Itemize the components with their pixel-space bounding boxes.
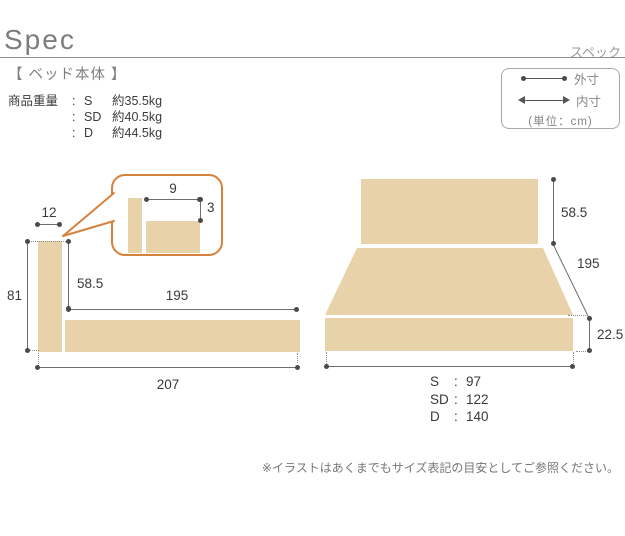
dim-headboard-thickness-label: 12 <box>36 205 62 220</box>
guide-line <box>326 352 327 364</box>
dim-base-height-label: 22.5 <box>597 327 623 342</box>
width-colon: : <box>454 373 466 391</box>
dim-step-height-label: 3 <box>207 200 215 215</box>
dim-front-inner-length-label: 195 <box>577 256 600 271</box>
dim-headboard-height-label: 58.5 <box>77 276 103 291</box>
dim-step-height-line <box>200 199 201 221</box>
dim-front-headboard-height-line <box>553 179 554 244</box>
front-view-headboard <box>361 179 538 244</box>
dim-total-height-line <box>27 241 28 351</box>
dim-headboard-thickness-line <box>37 224 60 225</box>
front-view-base <box>325 318 573 351</box>
width-size-list: S : 97 SD : 122 D : 140 <box>430 373 489 426</box>
dim-total-height-label: 81 <box>2 288 22 303</box>
dim-base-height-line <box>589 318 590 351</box>
dim-front-headboard-height-label: 58.5 <box>561 205 587 220</box>
guide-line <box>38 353 39 366</box>
width-size-d: D <box>430 408 454 426</box>
diagram-shapes <box>0 0 625 536</box>
guide-line <box>573 352 574 364</box>
width-value-s: 97 <box>466 373 489 391</box>
width-colon: : <box>454 391 466 409</box>
guide-line <box>297 353 298 363</box>
width-value-d: 140 <box>466 408 489 426</box>
side-view-headboard <box>38 241 62 352</box>
size-disclaimer-note: ※イラストはあくまでもサイズ表記の目安としてご参照ください。 <box>262 459 619 476</box>
width-value-sd: 122 <box>466 391 489 409</box>
detail-headboard <box>128 198 142 253</box>
side-view-base <box>65 320 300 352</box>
front-view-platform <box>325 248 573 315</box>
guide-line <box>568 315 586 316</box>
width-size-s: S <box>430 373 454 391</box>
spec-page: Spec スペック 【 ベッド本体 】 商品重量 : S 約35.5kg : S… <box>0 0 625 536</box>
dim-gap-width-line <box>146 199 200 200</box>
dim-total-length-label: 207 <box>141 377 195 392</box>
dim-inner-length-line <box>68 309 297 310</box>
guide-line <box>27 241 68 242</box>
dim-headboard-height-line <box>68 241 69 309</box>
dim-width-line <box>326 366 573 367</box>
dim-total-length-line <box>37 367 298 368</box>
width-colon: : <box>454 408 466 426</box>
dim-gap-width-label: 9 <box>160 181 186 196</box>
detail-platform <box>146 221 200 253</box>
dim-inner-length-label: 195 <box>150 288 204 303</box>
width-size-sd: SD <box>430 391 454 409</box>
